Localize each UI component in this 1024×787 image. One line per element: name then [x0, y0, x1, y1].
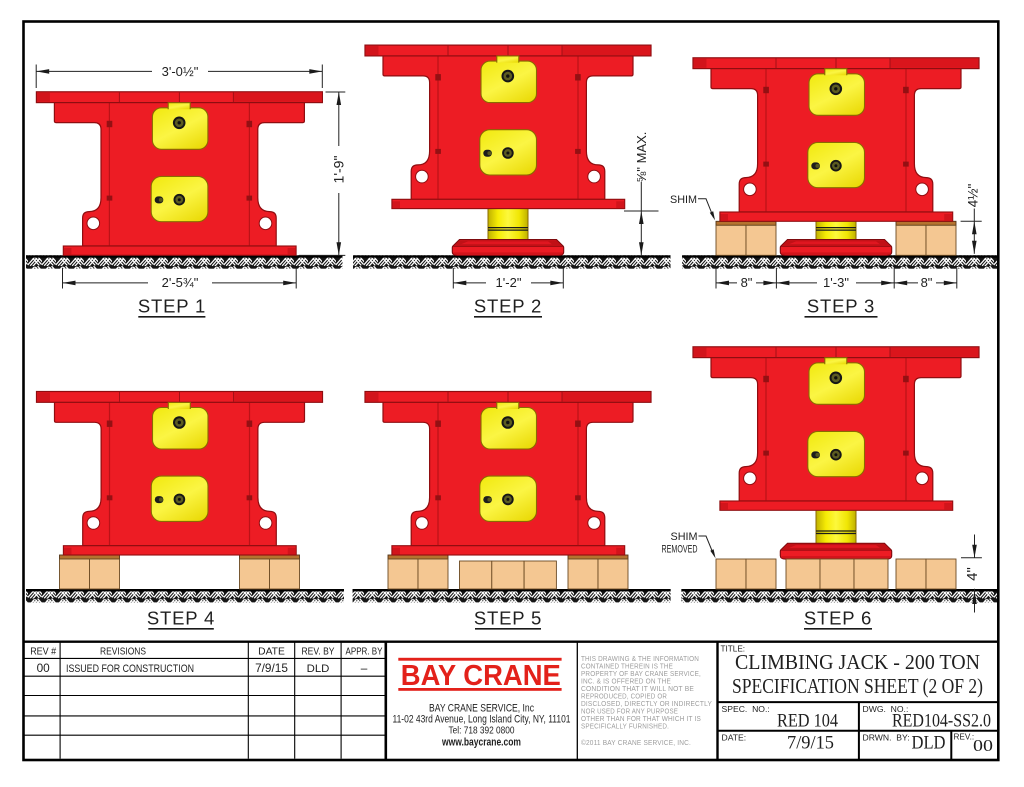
svg-text:REV. BY: REV. BY — [302, 647, 335, 658]
svg-text:SPECIFICATION SHEET (2 OF 2): SPECIFICATION SHEET (2 OF 2) — [732, 674, 983, 698]
svg-text:www.baycrane.com: www.baycrane.com — [441, 736, 521, 748]
svg-text:00: 00 — [37, 661, 51, 675]
svg-text:4½": 4½" — [965, 184, 980, 208]
svg-text:DLD: DLD — [912, 733, 946, 754]
svg-text:APPR. BY: APPR. BY — [346, 647, 383, 658]
svg-text:SHIM: SHIM — [670, 194, 697, 206]
svg-text:SPECIFICALLY FURNISHED.: SPECIFICALLY FURNISHED. — [581, 722, 669, 731]
svg-text:4": 4" — [964, 567, 981, 581]
svg-text:SHIM: SHIM — [671, 531, 698, 543]
svg-text:–: – — [361, 661, 368, 675]
svg-text:REV.:: REV.: — [954, 733, 975, 742]
svg-text:REMOVED: REMOVED — [662, 544, 698, 556]
svg-text:RED104-SS2.0: RED104-SS2.0 — [892, 710, 991, 731]
svg-text:DATE:: DATE: — [722, 733, 747, 743]
svg-text:1'-2": 1'-2" — [496, 275, 522, 290]
svg-text:00: 00 — [973, 736, 993, 755]
svg-text:ISSUED FOR CONSTRUCTION: ISSUED FOR CONSTRUCTION — [66, 663, 194, 675]
svg-text:8": 8" — [741, 275, 753, 290]
svg-text:REVISIONS: REVISIONS — [100, 647, 146, 658]
svg-text:©2011 BAY CRANE SERVICE, INC.: ©2011 BAY CRANE SERVICE, INC. — [581, 738, 691, 747]
svg-text:DRWN. BY:: DRWN. BY: — [863, 733, 910, 743]
svg-text:RED 104: RED 104 — [777, 710, 838, 731]
svg-text:STEP 1: STEP 1 — [138, 296, 206, 317]
svg-text:1'-9": 1'-9" — [330, 156, 346, 184]
svg-text:STEP 2: STEP 2 — [474, 296, 542, 317]
svg-text:STEP 5: STEP 5 — [474, 608, 542, 629]
svg-text:STEP 6: STEP 6 — [804, 608, 872, 629]
svg-text:1'-3": 1'-3" — [823, 275, 849, 290]
svg-text:DATE: DATE — [258, 647, 285, 658]
svg-text:STEP 4: STEP 4 — [147, 608, 215, 629]
svg-text:7/9/15: 7/9/15 — [787, 733, 834, 754]
svg-text:DLD: DLD — [307, 663, 330, 675]
svg-text:REV #: REV # — [30, 647, 56, 658]
svg-text:7/9/15: 7/9/15 — [255, 661, 288, 675]
svg-text:⅝" MAX.: ⅝" MAX. — [634, 132, 649, 183]
svg-text:Tel: 718 392 0800: Tel: 718 392 0800 — [449, 726, 515, 737]
svg-text:3'-0½": 3'-0½" — [162, 64, 199, 79]
svg-text:BAY CRANE: BAY CRANE — [401, 660, 561, 692]
svg-text:11-02 43rd Avenue, Long Island: 11-02 43rd Avenue, Long Island City, NY,… — [393, 714, 571, 726]
svg-text:STEP 3: STEP 3 — [807, 296, 875, 317]
svg-text:CLIMBING JACK - 200 TON: CLIMBING JACK - 200 TON — [735, 650, 980, 674]
svg-text:SPEC. NO.:: SPEC. NO.: — [722, 704, 770, 714]
svg-text:2'-5¾": 2'-5¾" — [162, 275, 199, 290]
svg-text:8": 8" — [921, 275, 933, 290]
